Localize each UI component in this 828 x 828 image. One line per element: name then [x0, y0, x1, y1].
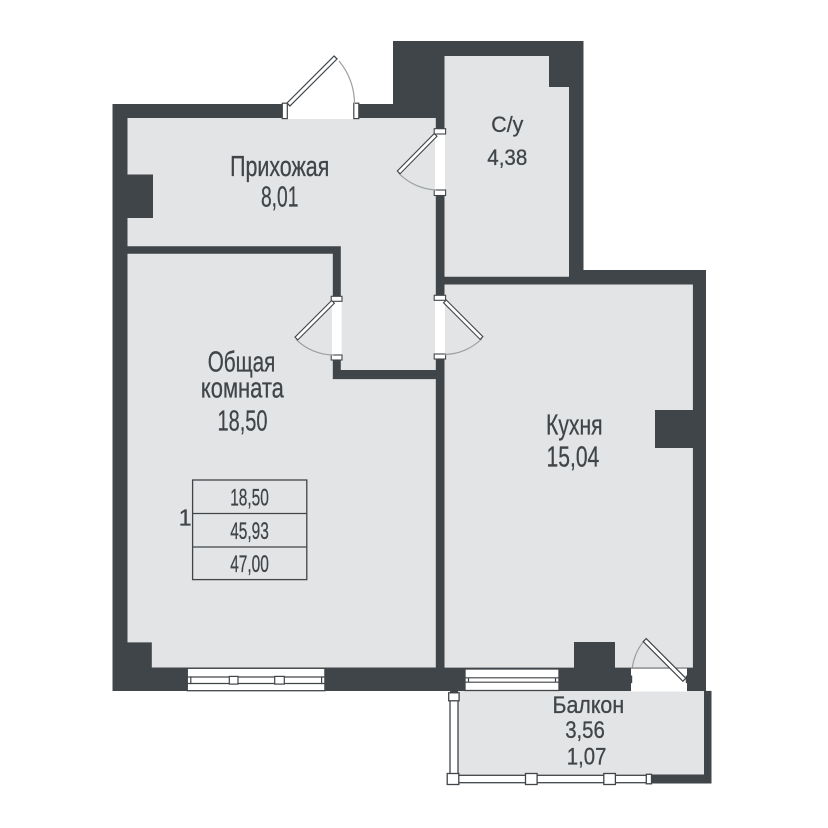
svg-text:комната: комната [201, 373, 284, 405]
svg-text:18,50: 18,50 [218, 406, 268, 438]
svg-text:3,56: 3,56 [565, 717, 605, 744]
svg-text:4,38: 4,38 [487, 145, 527, 170]
svg-text:Балкон: Балкон [552, 692, 624, 719]
svg-text:С/у: С/у [491, 112, 523, 137]
svg-text:47,00: 47,00 [230, 551, 269, 578]
svg-text:45,93: 45,93 [230, 518, 269, 545]
svg-text:1,07: 1,07 [567, 744, 607, 771]
svg-text:15,04: 15,04 [547, 442, 600, 474]
svg-text:Прихожая: Прихожая [230, 151, 329, 183]
svg-text:18,50: 18,50 [230, 484, 269, 511]
svg-text:Кухня: Кухня [546, 410, 603, 442]
svg-text:1: 1 [179, 505, 192, 531]
svg-text:8,01: 8,01 [261, 181, 299, 213]
